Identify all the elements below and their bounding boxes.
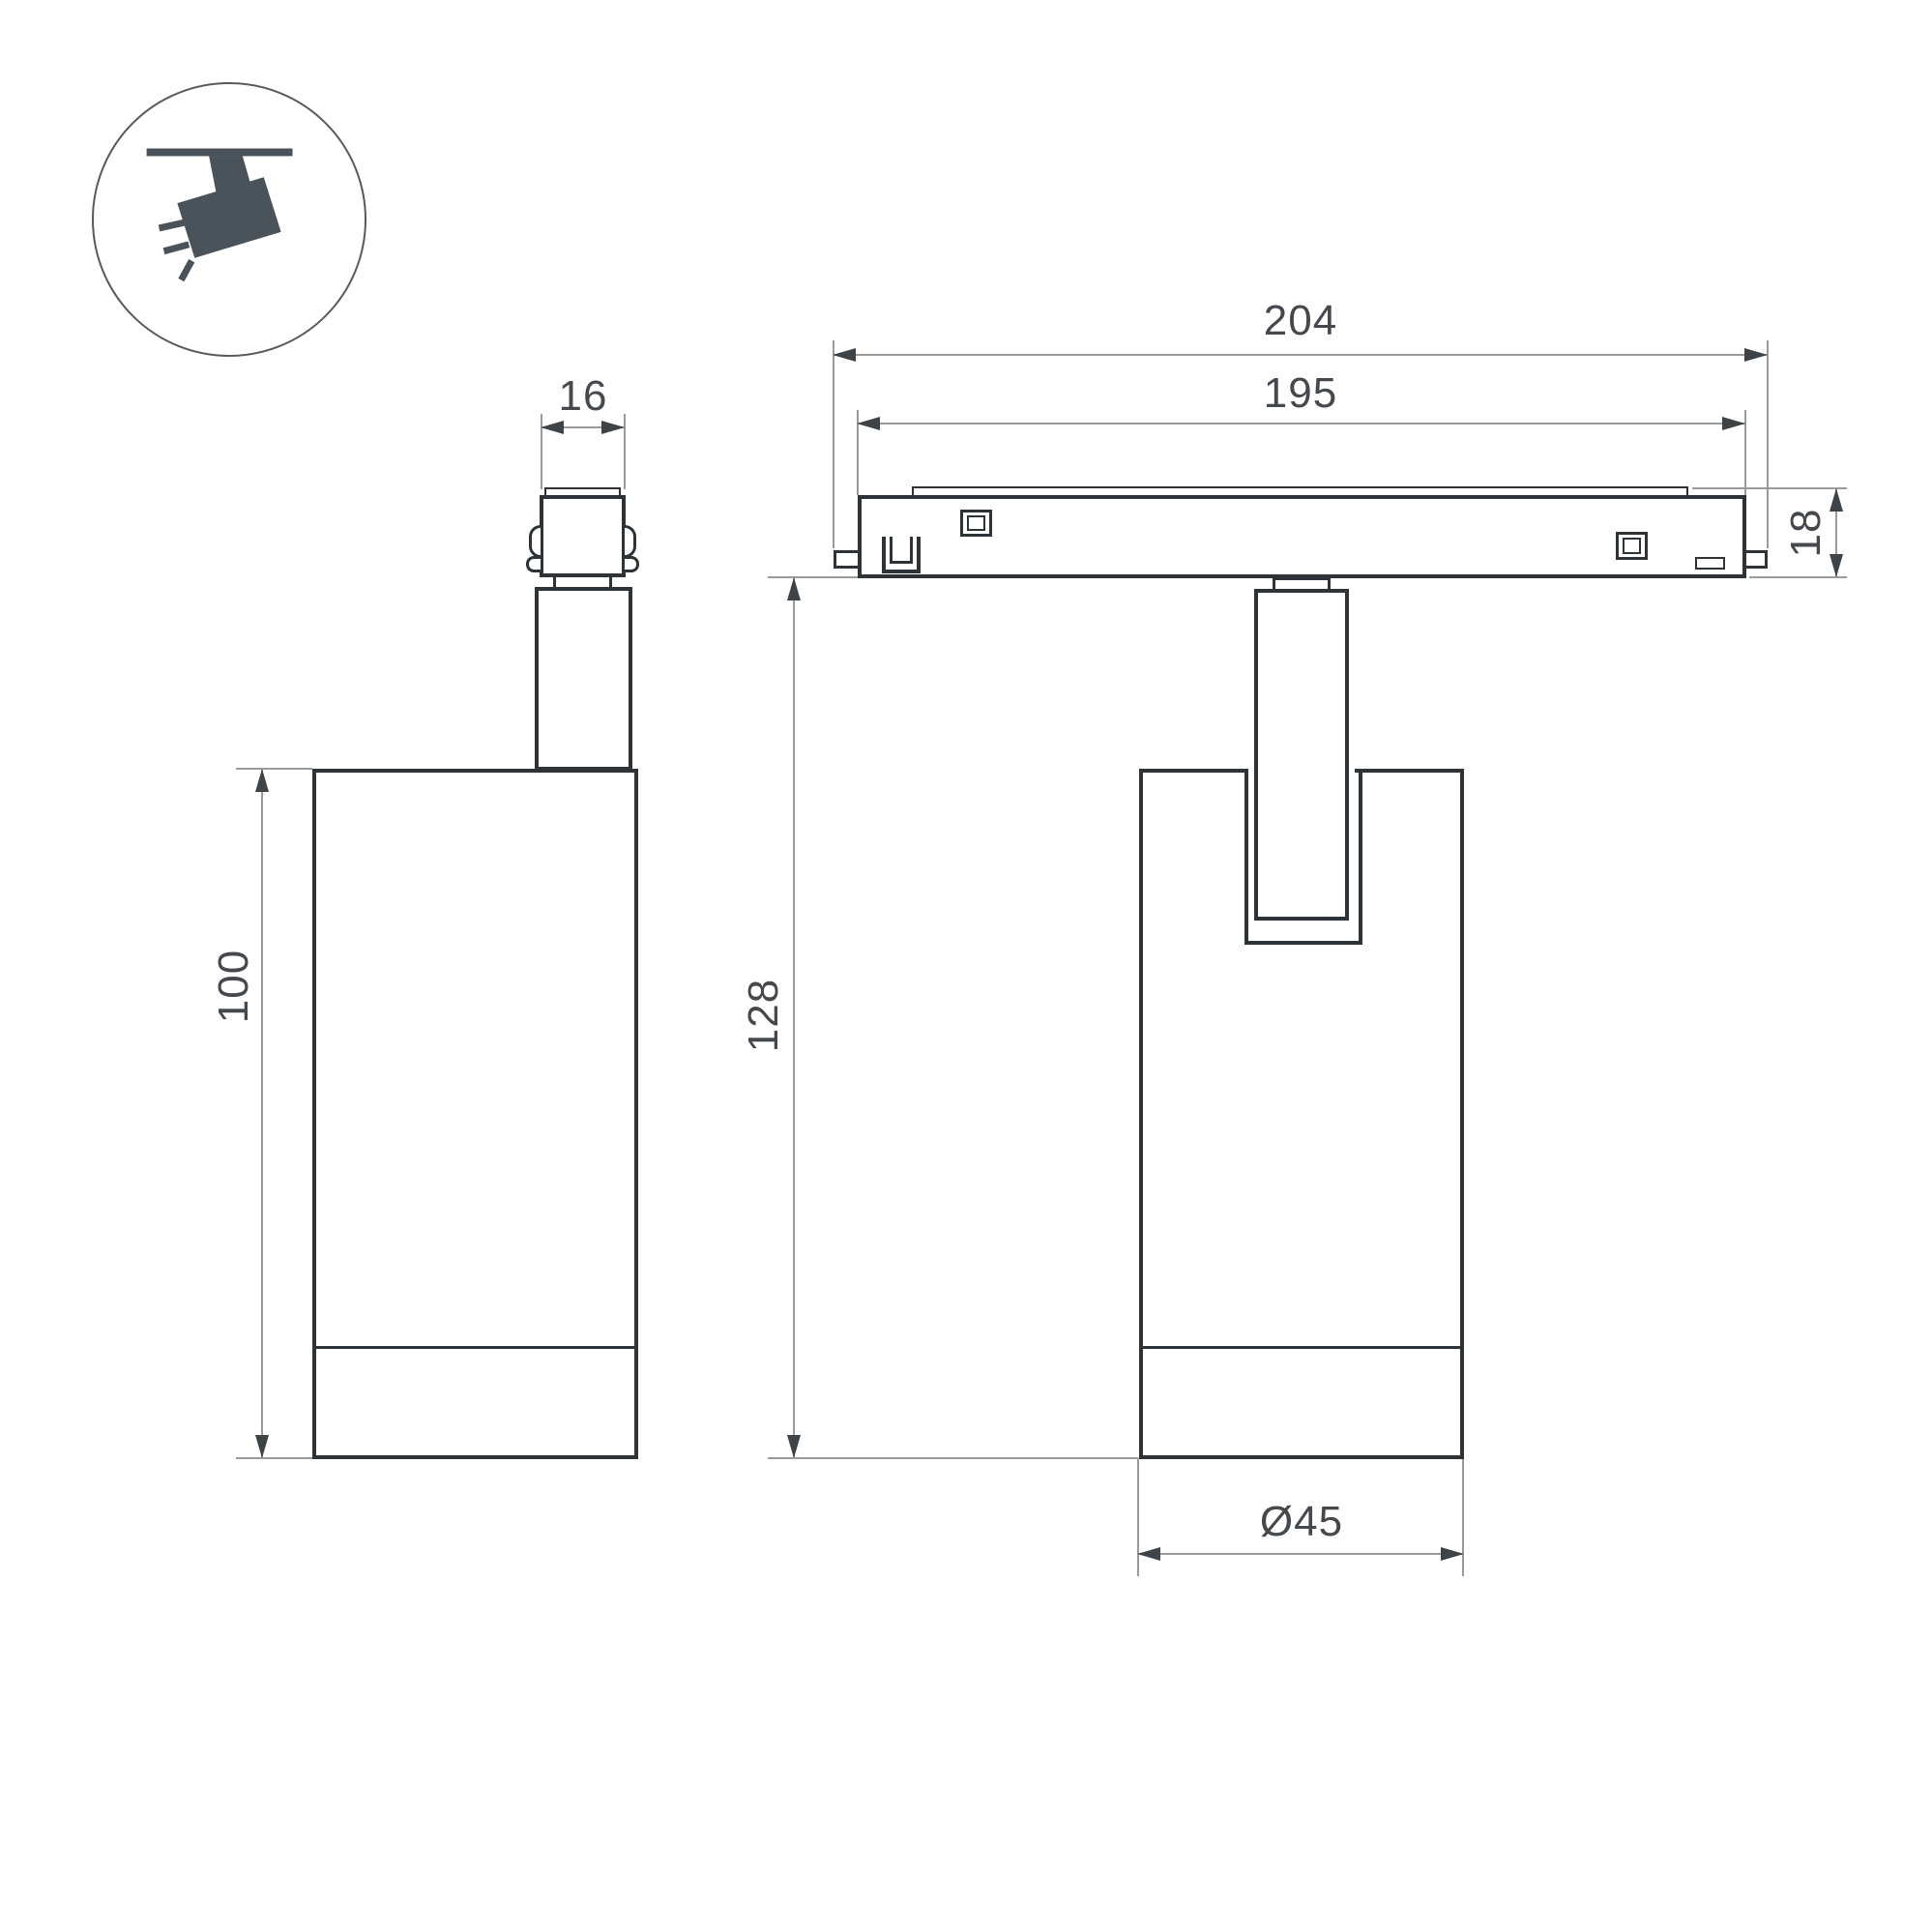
side-adapter-ear-right [625, 525, 636, 558]
dim-195-line [857, 423, 1745, 424]
side-adapter-lug-right [625, 556, 639, 572]
track-contact-clip [882, 537, 921, 573]
icon-light-ray [181, 261, 191, 280]
side-body-trim-line [316, 1346, 635, 1349]
dim-100-extension-bottom [236, 1457, 312, 1459]
front-notch-wall-right [1359, 769, 1362, 944]
side-magnetic-adapter [540, 495, 626, 577]
track-detail-square-right [1616, 532, 1648, 560]
dim-18-arrow-bottom [1830, 554, 1843, 577]
track-contact-clip-inner [890, 537, 913, 564]
dim-204-arrow-right [1744, 348, 1768, 362]
track-end-tab-left [834, 550, 861, 569]
icon-light-ray [160, 222, 186, 228]
front-notch-bottom [1244, 941, 1362, 945]
dim-128-line [793, 577, 795, 1458]
dim-128-arrow-top [787, 577, 801, 600]
dim-45-arrow-right [1441, 1547, 1464, 1561]
track-detail-square-left-inner [967, 515, 985, 531]
dim-128-extension-top [768, 576, 858, 578]
ceiling-track-spotlight-icon [92, 82, 366, 357]
side-adapter-ear-left [529, 525, 541, 558]
icon-ceiling-bar [147, 149, 293, 157]
dim-128-arrow-bottom [787, 1435, 801, 1458]
dim-204-extension-left [833, 340, 834, 548]
dim-128-extension-bottom [768, 1457, 1138, 1459]
dim-100-arrow-bottom [255, 1435, 269, 1458]
track-detail-slot [1695, 557, 1725, 570]
dim-100-extension-top [236, 768, 312, 770]
dim-204-arrow-left [833, 348, 856, 362]
dim-100-line [261, 769, 263, 1458]
dim-label-track-outer: 204 [1264, 297, 1337, 345]
dim-16-arrow-right [601, 421, 625, 434]
front-notch-wall-left [1244, 769, 1248, 944]
dim-label-body-height: 100 [210, 950, 258, 1023]
track-detail-square-left [960, 510, 992, 537]
dim-204-line [833, 354, 1768, 356]
track-detail-square-right-inner [1623, 538, 1641, 554]
dim-label-overall-height: 128 [740, 979, 788, 1052]
dim-45-arrow-left [1137, 1547, 1160, 1561]
dim-label-track-height: 18 [1782, 509, 1830, 558]
side-adapter-lug-left [526, 556, 541, 572]
dim-18-extension-top [1692, 487, 1847, 489]
dim-195-arrow-right [1722, 417, 1745, 430]
dim-label-adapter-width: 16 [559, 372, 608, 421]
dim-label-track-inner: 195 [1264, 369, 1337, 418]
dim-16-arrow-left [541, 421, 564, 434]
dim-100-arrow-top [255, 769, 269, 792]
dim-label-body-diameter: Ø45 [1260, 1498, 1343, 1546]
drawing-canvas: 16 100 204 195 18 [0, 0, 1932, 1932]
dim-18-arrow-top [1830, 488, 1843, 512]
side-stem [535, 587, 632, 771]
icon-light-ray [163, 245, 189, 251]
side-lamp-body [312, 769, 638, 1459]
dim-45-line [1137, 1553, 1464, 1555]
dim-195-arrow-left [857, 417, 880, 430]
front-body-trim-line [1143, 1346, 1460, 1349]
front-stem [1254, 589, 1349, 921]
icon-spotlight-body [177, 177, 280, 257]
track-profile [858, 495, 1746, 578]
dim-204-extension-right [1767, 340, 1769, 548]
